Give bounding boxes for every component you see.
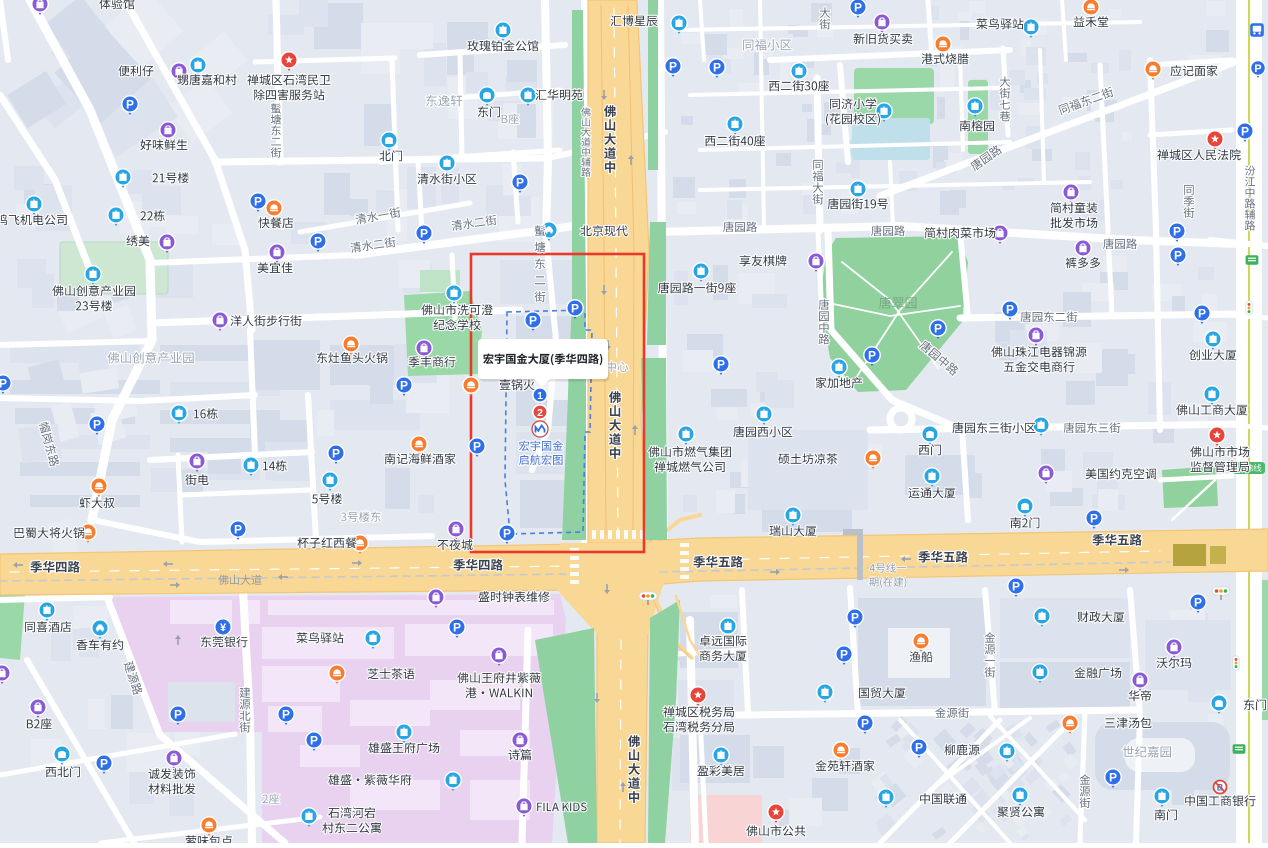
svg-text:P: P [310,733,318,747]
svg-text:P: P [1174,248,1182,262]
svg-text:P: P [868,348,876,362]
svg-text:P: P [254,194,262,208]
svg-text:P: P [934,321,942,335]
svg-text:P: P [332,446,340,460]
svg-text:P: P [717,357,725,371]
svg-text:P: P [516,175,524,189]
svg-text:P: P [93,417,101,431]
svg-text:P: P [453,620,461,634]
svg-text:P: P [174,707,182,721]
svg-text:P: P [1194,595,1202,609]
svg-text:P: P [669,59,677,73]
svg-text:2: 2 [537,407,543,419]
svg-text:P: P [713,60,721,74]
svg-text:P: P [1173,224,1181,238]
svg-text:P: P [126,97,134,111]
svg-text:P: P [840,647,848,661]
svg-text:P: P [571,301,579,315]
svg-text:P: P [915,740,923,754]
svg-text:P: P [234,522,242,536]
svg-text:P: P [1012,579,1020,593]
svg-text:P: P [1241,124,1249,138]
svg-text:P: P [503,526,511,540]
svg-text:P: P [1254,63,1261,75]
svg-text:P: P [282,707,290,721]
svg-text:P: P [473,439,481,453]
svg-text:P: P [1090,511,1098,525]
svg-text:P: P [861,716,869,730]
svg-text:P: P [1006,302,1014,316]
svg-text:P: P [851,610,859,624]
svg-text:P: P [1109,770,1117,784]
svg-text:¥: ¥ [220,622,227,634]
svg-text:P: P [100,756,108,770]
svg-text:P: P [1198,306,1206,320]
svg-text:P: P [314,234,322,248]
svg-text:P: P [420,226,428,240]
svg-text:P: P [529,313,537,327]
svg-text:P: P [854,0,862,14]
svg-text:P: P [0,376,7,390]
svg-text:P: P [400,378,408,392]
svg-text:1: 1 [537,390,543,402]
